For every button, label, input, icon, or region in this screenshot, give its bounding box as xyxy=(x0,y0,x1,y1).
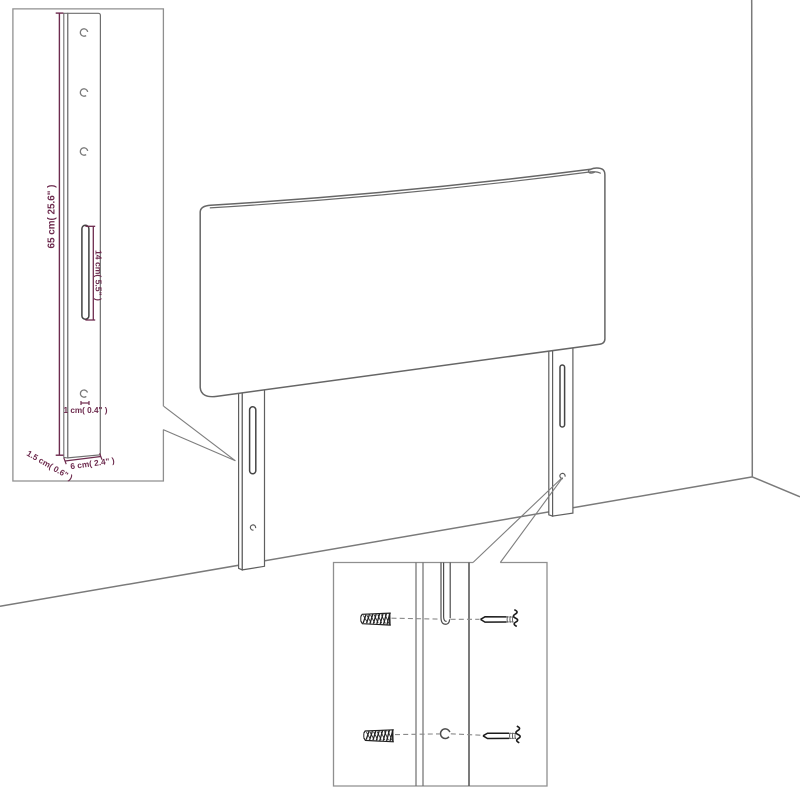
svg-text:65 cm( 25.6" ): 65 cm( 25.6" ) xyxy=(46,185,57,249)
svg-text:1 cm( 0.4" ): 1 cm( 0.4" ) xyxy=(64,406,108,415)
svg-text:14 cm( 5.5" ): 14 cm( 5.5" ) xyxy=(93,250,103,301)
